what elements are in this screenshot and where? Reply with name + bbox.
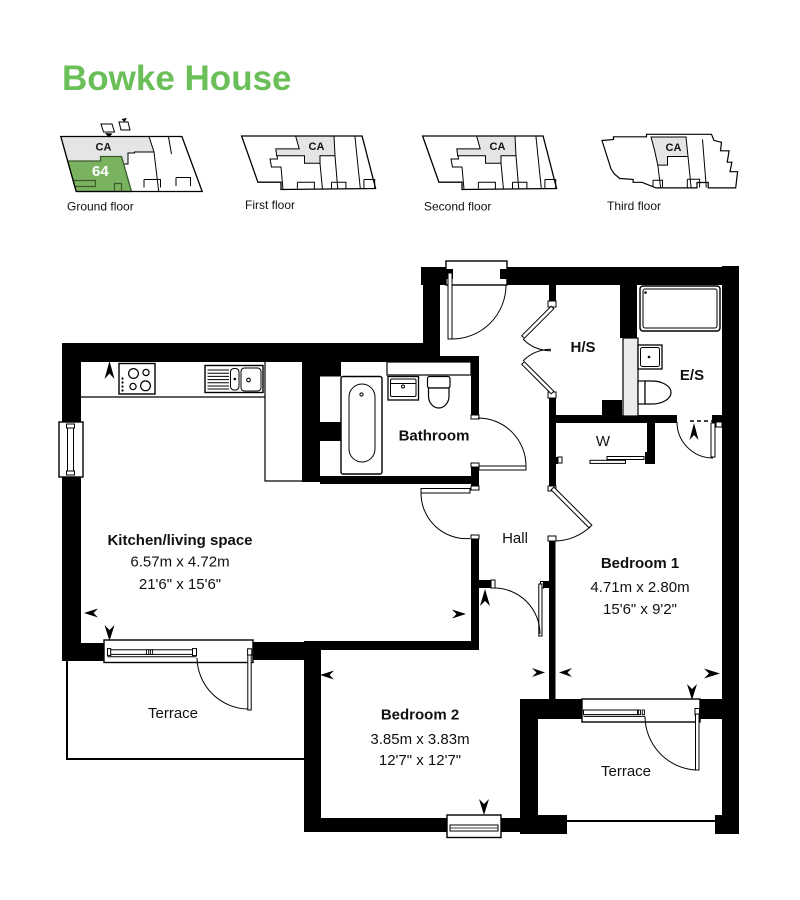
svg-text:Hall: Hall	[502, 530, 528, 547]
svg-text:CA: CA	[666, 142, 682, 154]
svg-text:6.57m x 4.72m: 6.57m x 4.72m	[130, 554, 229, 571]
svg-text:CA: CA	[96, 142, 112, 154]
svg-text:Ground floor: Ground floor	[67, 200, 134, 214]
svg-text:CA: CA	[309, 141, 325, 153]
svg-text:15'6" x 9'2": 15'6" x 9'2"	[603, 601, 677, 618]
svg-text:64: 64	[92, 163, 109, 180]
svg-text:First floor: First floor	[245, 198, 295, 212]
svg-text:Second floor: Second floor	[424, 200, 491, 214]
svg-text:Bedroom 1: Bedroom 1	[601, 555, 679, 572]
svg-text:Terrace: Terrace	[148, 705, 198, 722]
svg-text:E/S: E/S	[680, 367, 704, 384]
svg-text:4.71m x 2.80m: 4.71m x 2.80m	[590, 579, 689, 596]
svg-text:H/S: H/S	[570, 339, 595, 356]
svg-text:Third floor: Third floor	[607, 199, 661, 213]
svg-text:Bedroom 2: Bedroom 2	[381, 707, 459, 724]
svg-text:Terrace: Terrace	[601, 763, 651, 780]
svg-text:Kitchen/living space: Kitchen/living space	[107, 532, 252, 549]
svg-text:W: W	[596, 433, 611, 450]
svg-text:Bathroom: Bathroom	[399, 428, 470, 445]
svg-text:12'7" x 12'7": 12'7" x 12'7"	[379, 752, 461, 769]
svg-text:Bowke House: Bowke House	[62, 59, 292, 98]
svg-text:CA: CA	[490, 141, 506, 153]
svg-text:21'6" x 15'6": 21'6" x 15'6"	[139, 576, 221, 593]
svg-text:3.85m x 3.83m: 3.85m x 3.83m	[370, 731, 469, 748]
